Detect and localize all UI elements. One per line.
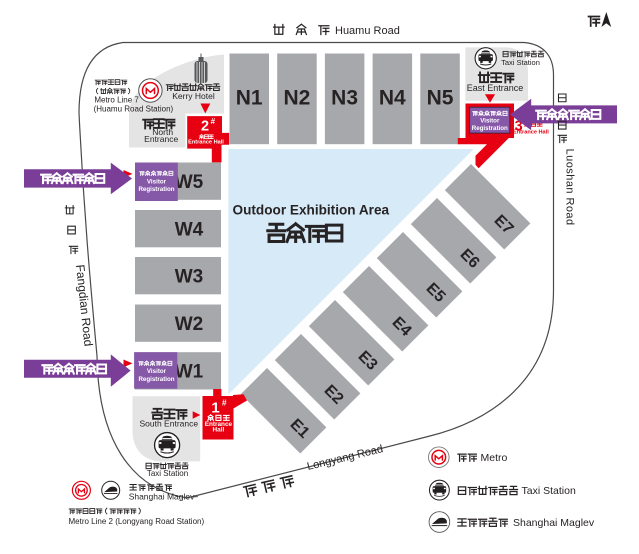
svg-text:N1: N1 [236,87,263,110]
svg-text:1: 1 [211,400,219,417]
svg-text:Visitor: Visitor [147,179,167,186]
svg-text:Metro Line 2 (Longyang Road St: Metro Line 2 (Longyang Road Station) [69,517,205,526]
svg-text:N3: N3 [331,87,358,110]
svg-text:Taxi Station: Taxi Station [147,469,188,478]
svg-text:Taxi Station: Taxi Station [501,58,540,67]
svg-text:(Huamu Road Station): (Huamu Road Station) [94,104,174,113]
svg-text:N4: N4 [379,87,406,110]
svg-text:Registration: Registration [138,376,174,383]
svg-text:#: # [222,398,227,408]
svg-text:Shanghai Maglev: Shanghai Maglev [513,517,595,529]
svg-text:W1: W1 [175,362,204,383]
svg-text:Visitor: Visitor [147,368,167,375]
svg-text:Shanghai Maglev: Shanghai Maglev [129,491,195,501]
svg-text:Registration: Registration [138,186,174,193]
svg-text:Luoshan Road: Luoshan Road [564,149,576,226]
svg-text:W4: W4 [175,219,204,240]
svg-text:Outdoor Exhibition Area: Outdoor Exhibition Area [233,203,390,218]
svg-text:Entrance Hall: Entrance Hall [188,140,224,146]
svg-text:W5: W5 [175,172,204,193]
svg-text:N5: N5 [427,87,454,110]
svg-text:Entrance: Entrance [144,134,178,144]
svg-text:#: # [211,117,216,126]
svg-text:N2: N2 [283,87,310,110]
svg-text:Kerry Hotel: Kerry Hotel [172,91,215,101]
svg-text:East Entrance: East Entrance [467,83,524,93]
svg-text:Hall: Hall [213,427,225,434]
svg-text:Huamu Road: Huamu Road [335,25,400,37]
svg-text:Visitor: Visitor [480,118,500,125]
svg-text:South Entrance: South Entrance [139,419,198,429]
svg-text:W2: W2 [175,314,204,335]
svg-text:Registration: Registration [472,125,508,132]
svg-text:W3: W3 [175,266,204,287]
svg-text:2: 2 [201,118,209,134]
svg-text:Metro: Metro [481,452,508,464]
svg-text:Metro Line 7: Metro Line 7 [94,95,139,104]
svg-text:Taxi Station: Taxi Station [522,485,576,497]
